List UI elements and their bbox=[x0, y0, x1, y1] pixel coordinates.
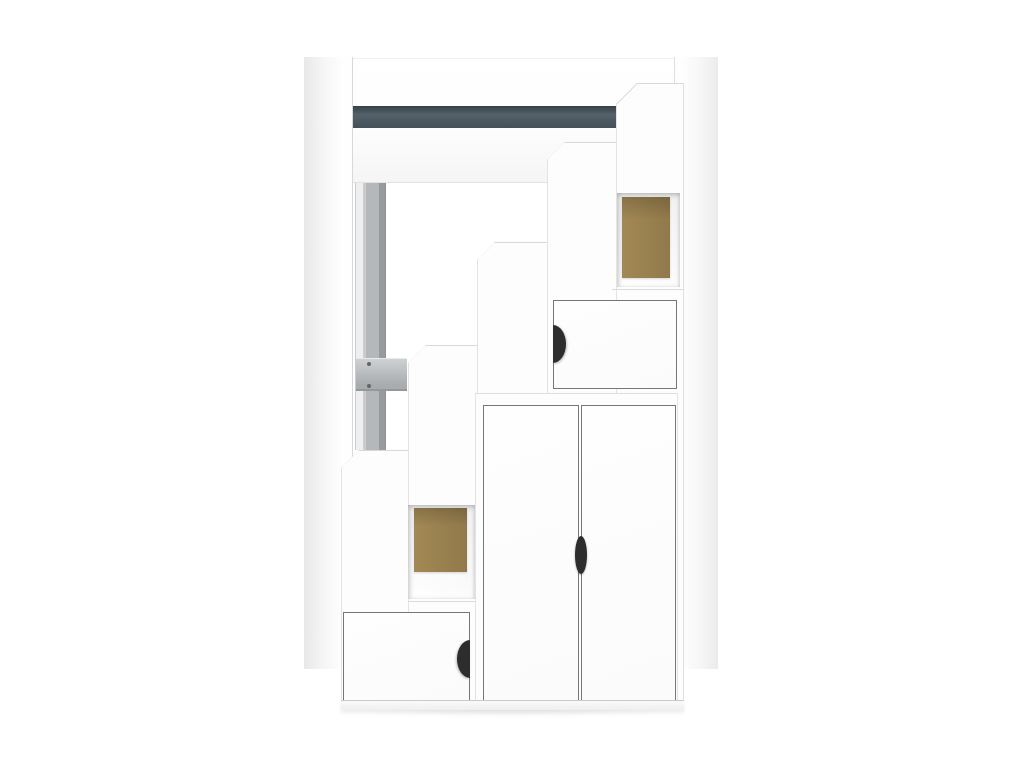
cabinet-left-door bbox=[483, 405, 579, 701]
open-cubby-bottom bbox=[408, 505, 475, 599]
base-plinth bbox=[341, 700, 684, 710]
upper-step-door bbox=[553, 300, 677, 389]
cabinet-handle-lens bbox=[575, 536, 587, 574]
step-chamfer-edge bbox=[476, 241, 495, 260]
step-chamfer-edge bbox=[407, 344, 426, 363]
shelf-edge-line bbox=[408, 601, 477, 602]
step-chamfer-edge bbox=[340, 449, 359, 468]
lower-step-door bbox=[343, 612, 470, 701]
door-handle-half-moon bbox=[553, 325, 566, 363]
cubby-back-panel bbox=[622, 197, 670, 278]
step-chamfer-edge bbox=[616, 83, 638, 105]
cabinet-right-door bbox=[581, 405, 676, 701]
shelf-edge-line bbox=[612, 289, 684, 290]
step-chamfer-edge bbox=[546, 141, 565, 160]
product-photo-stage bbox=[0, 0, 1024, 768]
open-cubby-top bbox=[617, 193, 680, 287]
staircase-storage-unit bbox=[0, 0, 1024, 768]
door-handle-half-moon bbox=[457, 640, 470, 678]
cubby-back-panel bbox=[414, 508, 467, 572]
